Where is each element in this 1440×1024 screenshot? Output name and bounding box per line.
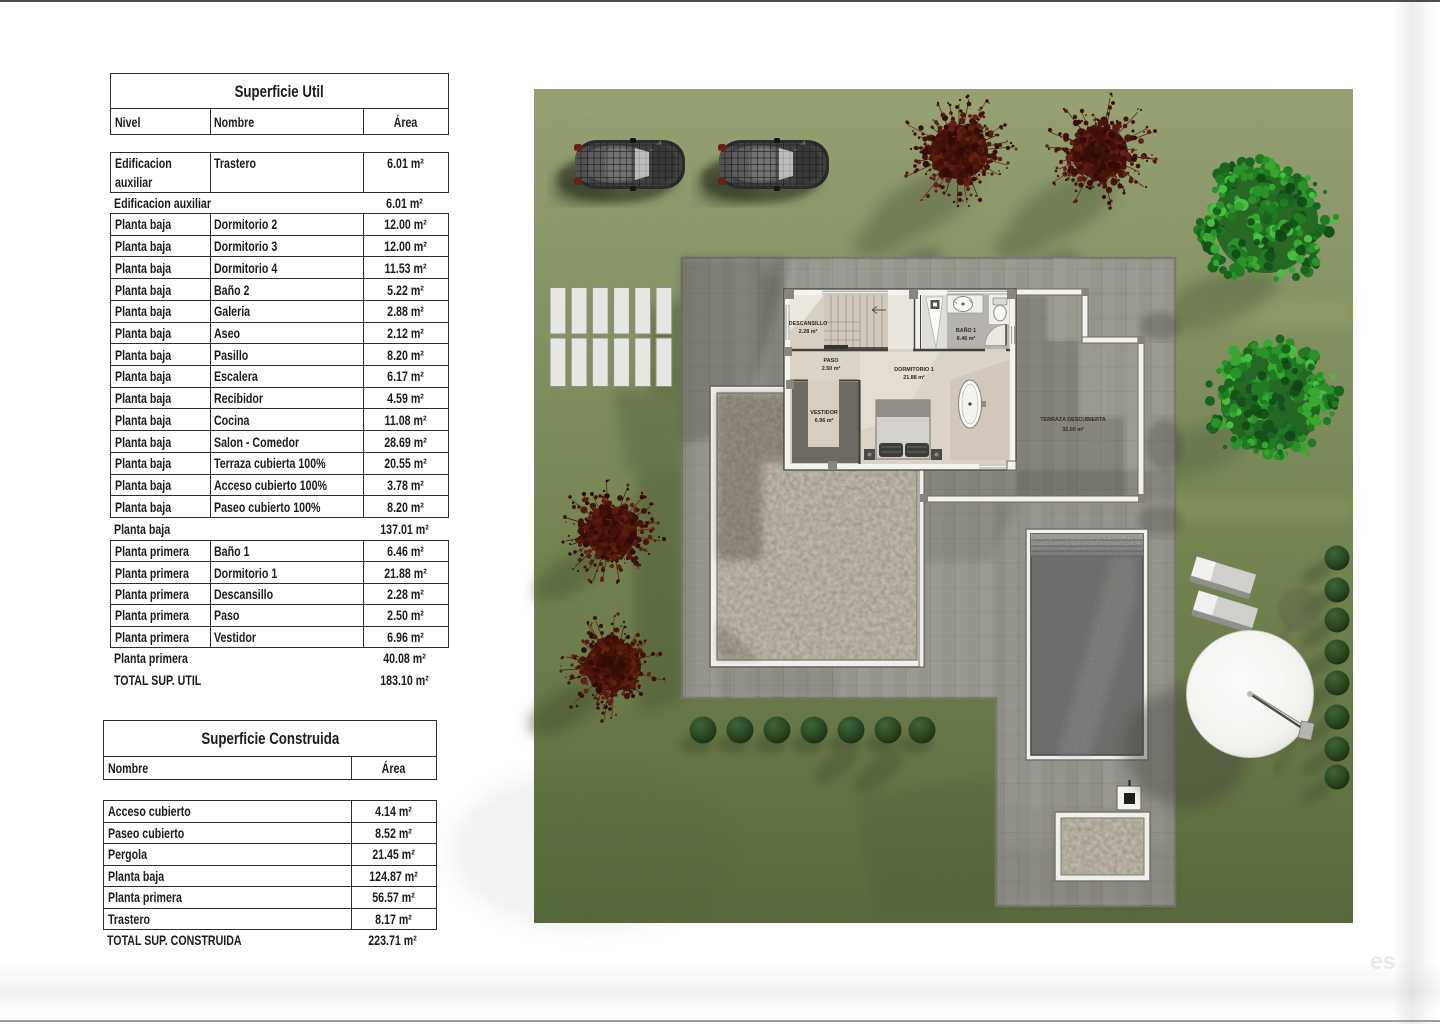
svg-text:TERRAZA DESCUBIERTA: TERRAZA DESCUBIERTA bbox=[1040, 417, 1106, 423]
svg-text:6.46 m²: 6.46 m² bbox=[957, 336, 976, 342]
svg-text:6.96 m²: 6.96 m² bbox=[815, 418, 834, 424]
svg-text:2.28 m²: 2.28 m² bbox=[799, 329, 818, 335]
svg-text:21.88 m²: 21.88 m² bbox=[903, 375, 925, 381]
svg-text:DORMITORIO 1: DORMITORIO 1 bbox=[894, 367, 933, 373]
svg-text:BAÑO 1: BAÑO 1 bbox=[956, 327, 976, 334]
svg-text:2.50 m²: 2.50 m² bbox=[822, 366, 841, 372]
svg-text:VESTIDOR: VESTIDOR bbox=[810, 410, 838, 416]
svg-text:DESCANSILLO: DESCANSILLO bbox=[789, 321, 828, 327]
svg-text:32.00 m²: 32.00 m² bbox=[1062, 427, 1084, 433]
svg-text:PASO: PASO bbox=[824, 358, 839, 364]
